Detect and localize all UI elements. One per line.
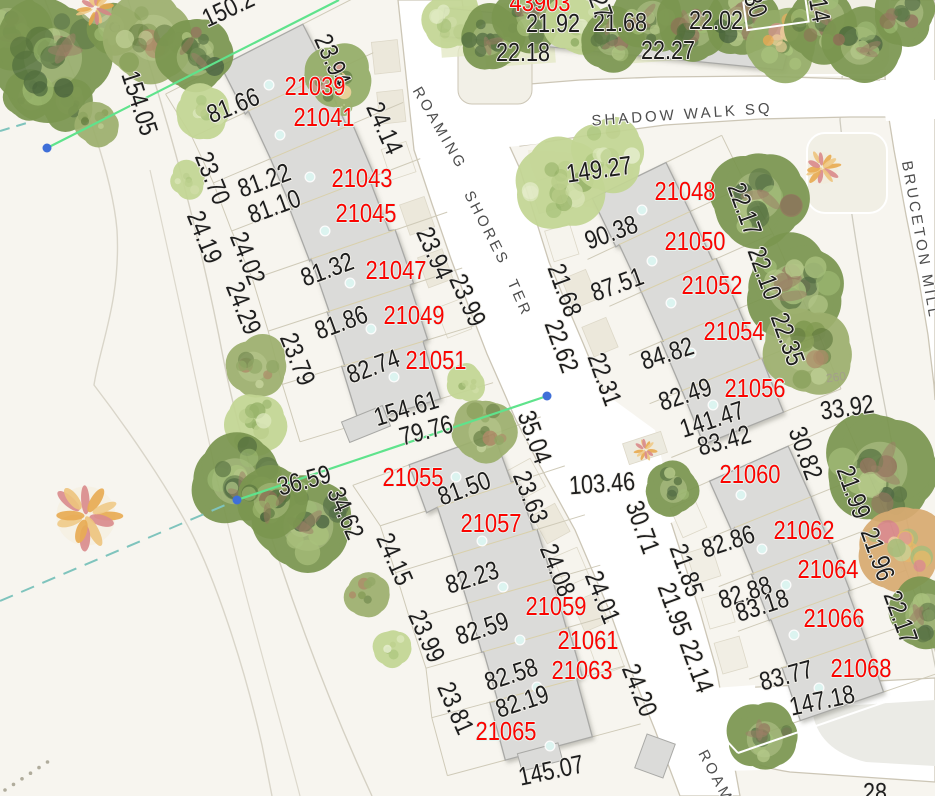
- svg-text:21051: 21051: [406, 345, 467, 375]
- svg-text:21043: 21043: [332, 163, 393, 193]
- svg-text:21041: 21041: [294, 102, 355, 132]
- svg-text:21057: 21057: [461, 508, 522, 538]
- svg-text:22.02: 22.02: [689, 5, 743, 35]
- svg-text:28: 28: [863, 777, 887, 796]
- svg-text:21055: 21055: [383, 462, 444, 492]
- svg-text:21060: 21060: [720, 459, 781, 489]
- svg-text:22.27: 22.27: [641, 35, 695, 65]
- svg-text:43903: 43903: [510, 0, 571, 17]
- svg-text:21045: 21045: [336, 198, 397, 228]
- svg-text:21066: 21066: [804, 603, 865, 633]
- svg-text:21062: 21062: [774, 515, 835, 545]
- svg-text:21068: 21068: [831, 653, 892, 683]
- svg-text:260: 260: [825, 369, 847, 386]
- svg-text:22.18: 22.18: [496, 37, 550, 67]
- svg-text:21049: 21049: [384, 300, 445, 330]
- svg-text:21065: 21065: [476, 716, 537, 746]
- svg-text:21050: 21050: [665, 226, 726, 256]
- svg-text:21063: 21063: [552, 655, 613, 685]
- svg-text:21052: 21052: [682, 270, 743, 300]
- svg-text:21054: 21054: [704, 316, 765, 346]
- svg-text:21064: 21064: [798, 554, 859, 584]
- svg-text:21048: 21048: [655, 176, 716, 206]
- svg-text:21061: 21061: [558, 625, 619, 655]
- svg-text:21056: 21056: [725, 373, 786, 403]
- svg-text:21039: 21039: [285, 71, 346, 101]
- svg-text:21047: 21047: [366, 255, 427, 285]
- svg-text:21059: 21059: [526, 591, 587, 621]
- svg-text:103.46: 103.46: [568, 466, 636, 501]
